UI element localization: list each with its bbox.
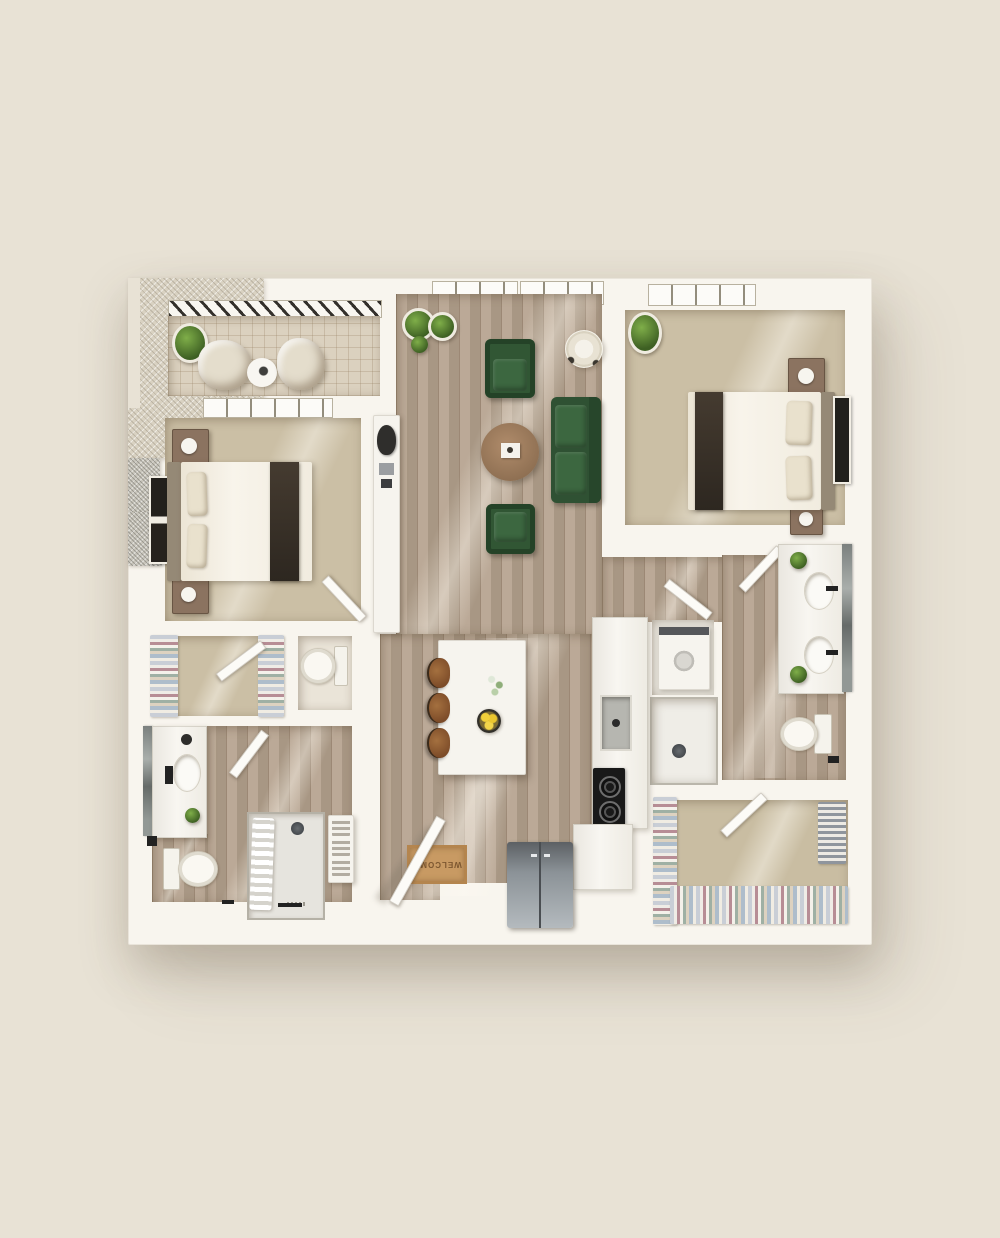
bedroom1-nightstand-bottom — [172, 579, 209, 614]
pillow — [785, 456, 813, 501]
kitchen-island — [438, 640, 526, 775]
desk-equipment — [381, 479, 392, 488]
folded-linens — [332, 860, 350, 876]
pillow — [785, 401, 813, 446]
pillow — [186, 472, 208, 517]
chair-cushion — [493, 359, 527, 391]
apartment-floor-plan: WELCOME — [128, 278, 872, 945]
sofa-cushion — [555, 405, 587, 448]
bathroom1-toilet — [163, 848, 219, 888]
towel-hook — [222, 900, 234, 904]
toilet-tank — [334, 646, 348, 686]
fridge-handle — [531, 854, 537, 857]
bar-stool — [427, 658, 450, 688]
desk-chair — [377, 425, 396, 455]
vanity-mirror — [143, 726, 152, 836]
vanity-sink — [173, 754, 201, 792]
table-books — [501, 443, 520, 458]
living-plant-2 — [428, 312, 457, 341]
table-decor — [507, 447, 513, 453]
washer-drum — [672, 649, 696, 673]
closet1-clothes-rack-left — [150, 635, 178, 717]
accent-chair — [565, 330, 603, 368]
burner — [599, 801, 621, 823]
table-lamp — [799, 512, 813, 526]
faucet — [165, 766, 173, 784]
sink-faucet — [612, 719, 620, 727]
burner — [599, 776, 621, 798]
shower2-floor — [650, 697, 718, 785]
bedroom2-window — [648, 284, 756, 306]
bedroom1-window — [203, 398, 333, 418]
fridge-handle — [544, 854, 550, 857]
vanity-sink — [804, 572, 834, 610]
bathroom1-vanity — [143, 726, 205, 836]
faucet — [826, 650, 838, 655]
table-lamp — [181, 438, 197, 454]
green-armchair-top — [485, 339, 535, 398]
lemon-bowl — [477, 709, 501, 733]
washer-top-panel — [659, 627, 709, 635]
bedroom2-wall-art — [833, 396, 851, 484]
built-in-desk — [373, 415, 400, 633]
water-closet-toilet — [300, 644, 346, 686]
washer — [658, 626, 710, 690]
living-plant-3 — [411, 336, 428, 353]
bed-runner — [270, 462, 299, 581]
soap-dispenser — [181, 734, 192, 745]
flower-stems — [485, 671, 507, 699]
floor-plan-render: WELCOME — [0, 0, 1000, 1238]
headboard — [167, 462, 181, 581]
vanity-sink — [804, 636, 834, 674]
coffee-table — [481, 423, 539, 481]
toilet-bowl — [780, 717, 818, 751]
shower1-head — [291, 822, 304, 835]
bathroom2-toilet — [780, 714, 832, 752]
fridge-door-split — [539, 842, 541, 928]
hanging-towels — [249, 818, 274, 911]
bedroom2-nightstand-top — [788, 358, 825, 395]
vanity-plant — [790, 552, 807, 569]
sofa-cushion — [555, 452, 587, 495]
green-sofa — [551, 397, 601, 503]
vanity-plant — [790, 666, 807, 683]
chair-cushion — [494, 512, 527, 542]
folded-linens — [332, 840, 350, 856]
balcony-lounge-chair-1 — [198, 340, 252, 390]
shower2-head — [672, 744, 686, 758]
linen-shelves — [328, 815, 354, 883]
vanity-plant — [185, 808, 200, 823]
bedroom2-bed — [688, 392, 835, 510]
pillow — [186, 524, 208, 569]
toilet-bowl — [300, 648, 336, 684]
balcony-lounge-chair-2 — [277, 338, 325, 390]
kitchen-sink — [600, 695, 632, 751]
faucet — [826, 586, 838, 591]
cooktop — [593, 768, 625, 826]
wall-notch — [128, 278, 140, 408]
refrigerator — [507, 842, 573, 928]
closet2-clothes-rack-bottom — [670, 886, 848, 924]
bar-stool — [427, 728, 450, 758]
table-lamp — [798, 368, 814, 384]
kitchen-counter-lower — [573, 824, 633, 890]
vanity-mirror — [842, 544, 852, 692]
bar-stool — [427, 693, 450, 723]
toilet-paper-holder — [147, 836, 157, 846]
green-armchair-bottom — [486, 504, 535, 554]
toilet-paper-holder — [828, 756, 839, 763]
towel-bar — [278, 903, 302, 907]
bedroom1-bed — [167, 462, 312, 581]
sofa-back — [589, 397, 601, 503]
balcony-side-table — [247, 358, 277, 387]
bathroom2-vanity — [778, 544, 852, 692]
folded-linens — [332, 820, 350, 836]
table-lamp — [181, 587, 196, 602]
bedroom2-plant — [628, 312, 662, 354]
closet2-clothes-rack-right — [818, 802, 846, 864]
toilet-bowl — [178, 851, 218, 887]
bed-runner — [695, 392, 723, 510]
desk-equipment — [379, 463, 394, 475]
